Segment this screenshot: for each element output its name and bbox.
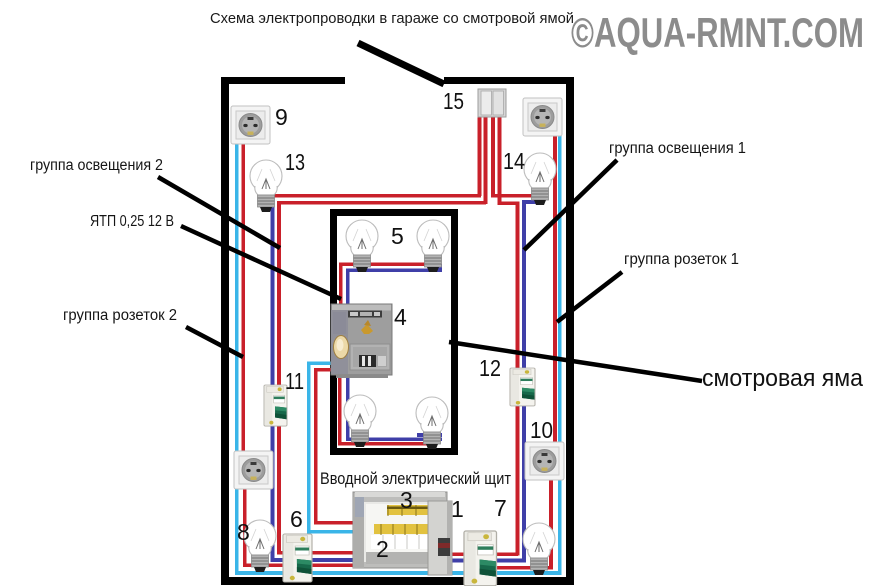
- svg-text:смотровая яма: смотровая яма: [702, 365, 864, 392]
- svg-text:©AQUA-RMNT.COM: ©AQUA-RMNT.COM: [571, 9, 864, 56]
- svg-text:8: 8: [237, 519, 250, 545]
- svg-text:2: 2: [376, 536, 389, 562]
- svg-text:Вводной электрический щит: Вводной электрический щит: [320, 469, 511, 488]
- svg-text:группа розеток 2: группа розеток 2: [63, 307, 177, 324]
- svg-text:14: 14: [503, 148, 525, 174]
- svg-text:10: 10: [530, 417, 553, 443]
- svg-text:Схема электропроводки в гараже: Схема электропроводки в гараже со смотро…: [210, 11, 574, 27]
- svg-text:группа розеток 1: группа розеток 1: [624, 251, 739, 268]
- svg-text:5: 5: [391, 223, 404, 249]
- svg-text:4: 4: [394, 304, 407, 330]
- svg-text:3: 3: [400, 487, 413, 513]
- svg-text:12: 12: [479, 355, 501, 381]
- svg-text:7: 7: [494, 495, 507, 521]
- svg-text:11: 11: [285, 368, 304, 394]
- svg-text:13: 13: [285, 149, 305, 175]
- svg-text:15: 15: [443, 88, 464, 114]
- svg-text:группа освещения 2: группа освещения 2: [30, 157, 163, 174]
- svg-text:1: 1: [451, 496, 464, 522]
- svg-text:ЯТП 0,25 12 В: ЯТП 0,25 12 В: [90, 213, 174, 230]
- svg-text:9: 9: [275, 104, 288, 130]
- svg-text:6: 6: [290, 506, 303, 532]
- svg-text:группа освещения 1: группа освещения 1: [609, 140, 746, 157]
